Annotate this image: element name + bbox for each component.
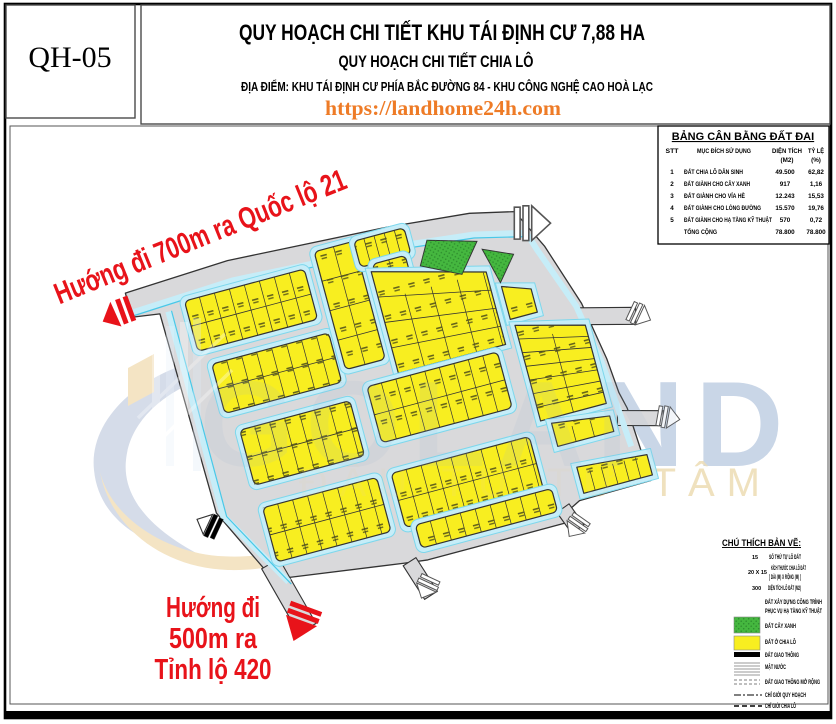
svg-text:15: 15 [752, 555, 758, 561]
svg-text:3: 3 [670, 193, 674, 200]
svg-text:570: 570 [780, 217, 791, 224]
svg-text:CHỈ GIỚI QUY HOẠCH: CHỈ GIỚI QUY HOẠCH [765, 690, 806, 699]
svg-text:78.800: 78.800 [806, 229, 826, 236]
svg-text:MỤC ĐÍCH SỬ DỤNG: MỤC ĐÍCH SỬ DỤNG [697, 146, 751, 155]
svg-text:2: 2 [670, 181, 674, 188]
svg-text:QUY HOẠCH CHI TIẾT KHU TÁI ĐỊN: QUY HOẠCH CHI TIẾT KHU TÁI ĐỊNH CƯ 7,88 … [239, 20, 645, 45]
svg-text:TỔNG CỘNG: TỔNG CỘNG [684, 227, 717, 236]
svg-text:0,72: 0,72 [810, 217, 823, 224]
svg-text:(M2): (M2) [781, 157, 794, 164]
svg-text:300: 300 [752, 586, 761, 592]
svg-text:ĐỊA ĐIỂM: KHU TÁI ĐỊNH CƯ PHÍA: ĐỊA ĐIỂM: KHU TÁI ĐỊNH CƯ PHÍA BẮC ĐƯỜNG… [241, 79, 653, 94]
svg-text:TỶ LỆ: TỶ LỆ [808, 146, 824, 155]
svg-text:QH-05: QH-05 [28, 41, 111, 74]
svg-text:BẢNG CÂN BẰNG ĐẤT ĐAI: BẢNG CÂN BẰNG ĐẤT ĐAI [672, 130, 814, 143]
svg-text:1,16: 1,16 [810, 181, 823, 188]
svg-text:1: 1 [670, 169, 674, 176]
svg-text:917: 917 [780, 181, 791, 188]
svg-text:Tỉnh lộ 420: Tỉnh lộ 420 [155, 654, 272, 686]
svg-text:CHỈ GIỚI CHIA LÔ: CHỈ GIỚI CHIA LÔ [765, 701, 796, 710]
svg-text:62,82: 62,82 [808, 169, 824, 176]
svg-text:15,53: 15,53 [808, 193, 824, 200]
svg-text:19,76: 19,76 [808, 205, 824, 212]
svg-text:49.500: 49.500 [775, 169, 795, 176]
svg-text:MẶT NƯỚC: MẶT NƯỚC [765, 662, 786, 671]
svg-text:5: 5 [670, 217, 674, 224]
svg-text:500m ra: 500m ra [169, 623, 258, 655]
svg-text:4: 4 [670, 205, 674, 212]
svg-text:STT: STT [666, 148, 679, 155]
svg-text:(%): (%) [811, 157, 821, 164]
svg-text:78.800: 78.800 [775, 229, 795, 236]
svg-text:ĐẦU TƯ TỪ TÂM: ĐẦU TƯ TỪ TÂM [299, 459, 772, 505]
svg-text:CHÚ THÍCH BẢN VẼ:: CHÚ THÍCH BẢN VẼ: [722, 537, 801, 549]
svg-text:QUY HOẠCH CHI TIẾT CHIA LÔ: QUY HOẠCH CHI TIẾT CHIA LÔ [339, 52, 534, 71]
svg-text:Hướng đi: Hướng đi [166, 592, 260, 624]
svg-text:[ DÀI (M) X RỘNG (M) ]: [ DÀI (M) X RỘNG (M) ] [769, 572, 801, 581]
svg-text:20 X 15: 20 X 15 [748, 570, 767, 576]
svg-text:12.243: 12.243 [775, 193, 795, 200]
svg-text:DIỆN TÍCH: DIỆN TÍCH [772, 146, 802, 155]
svg-text:15.570: 15.570 [775, 205, 795, 212]
svg-text:https://landhome24h.com: https://landhome24h.com [325, 96, 562, 120]
